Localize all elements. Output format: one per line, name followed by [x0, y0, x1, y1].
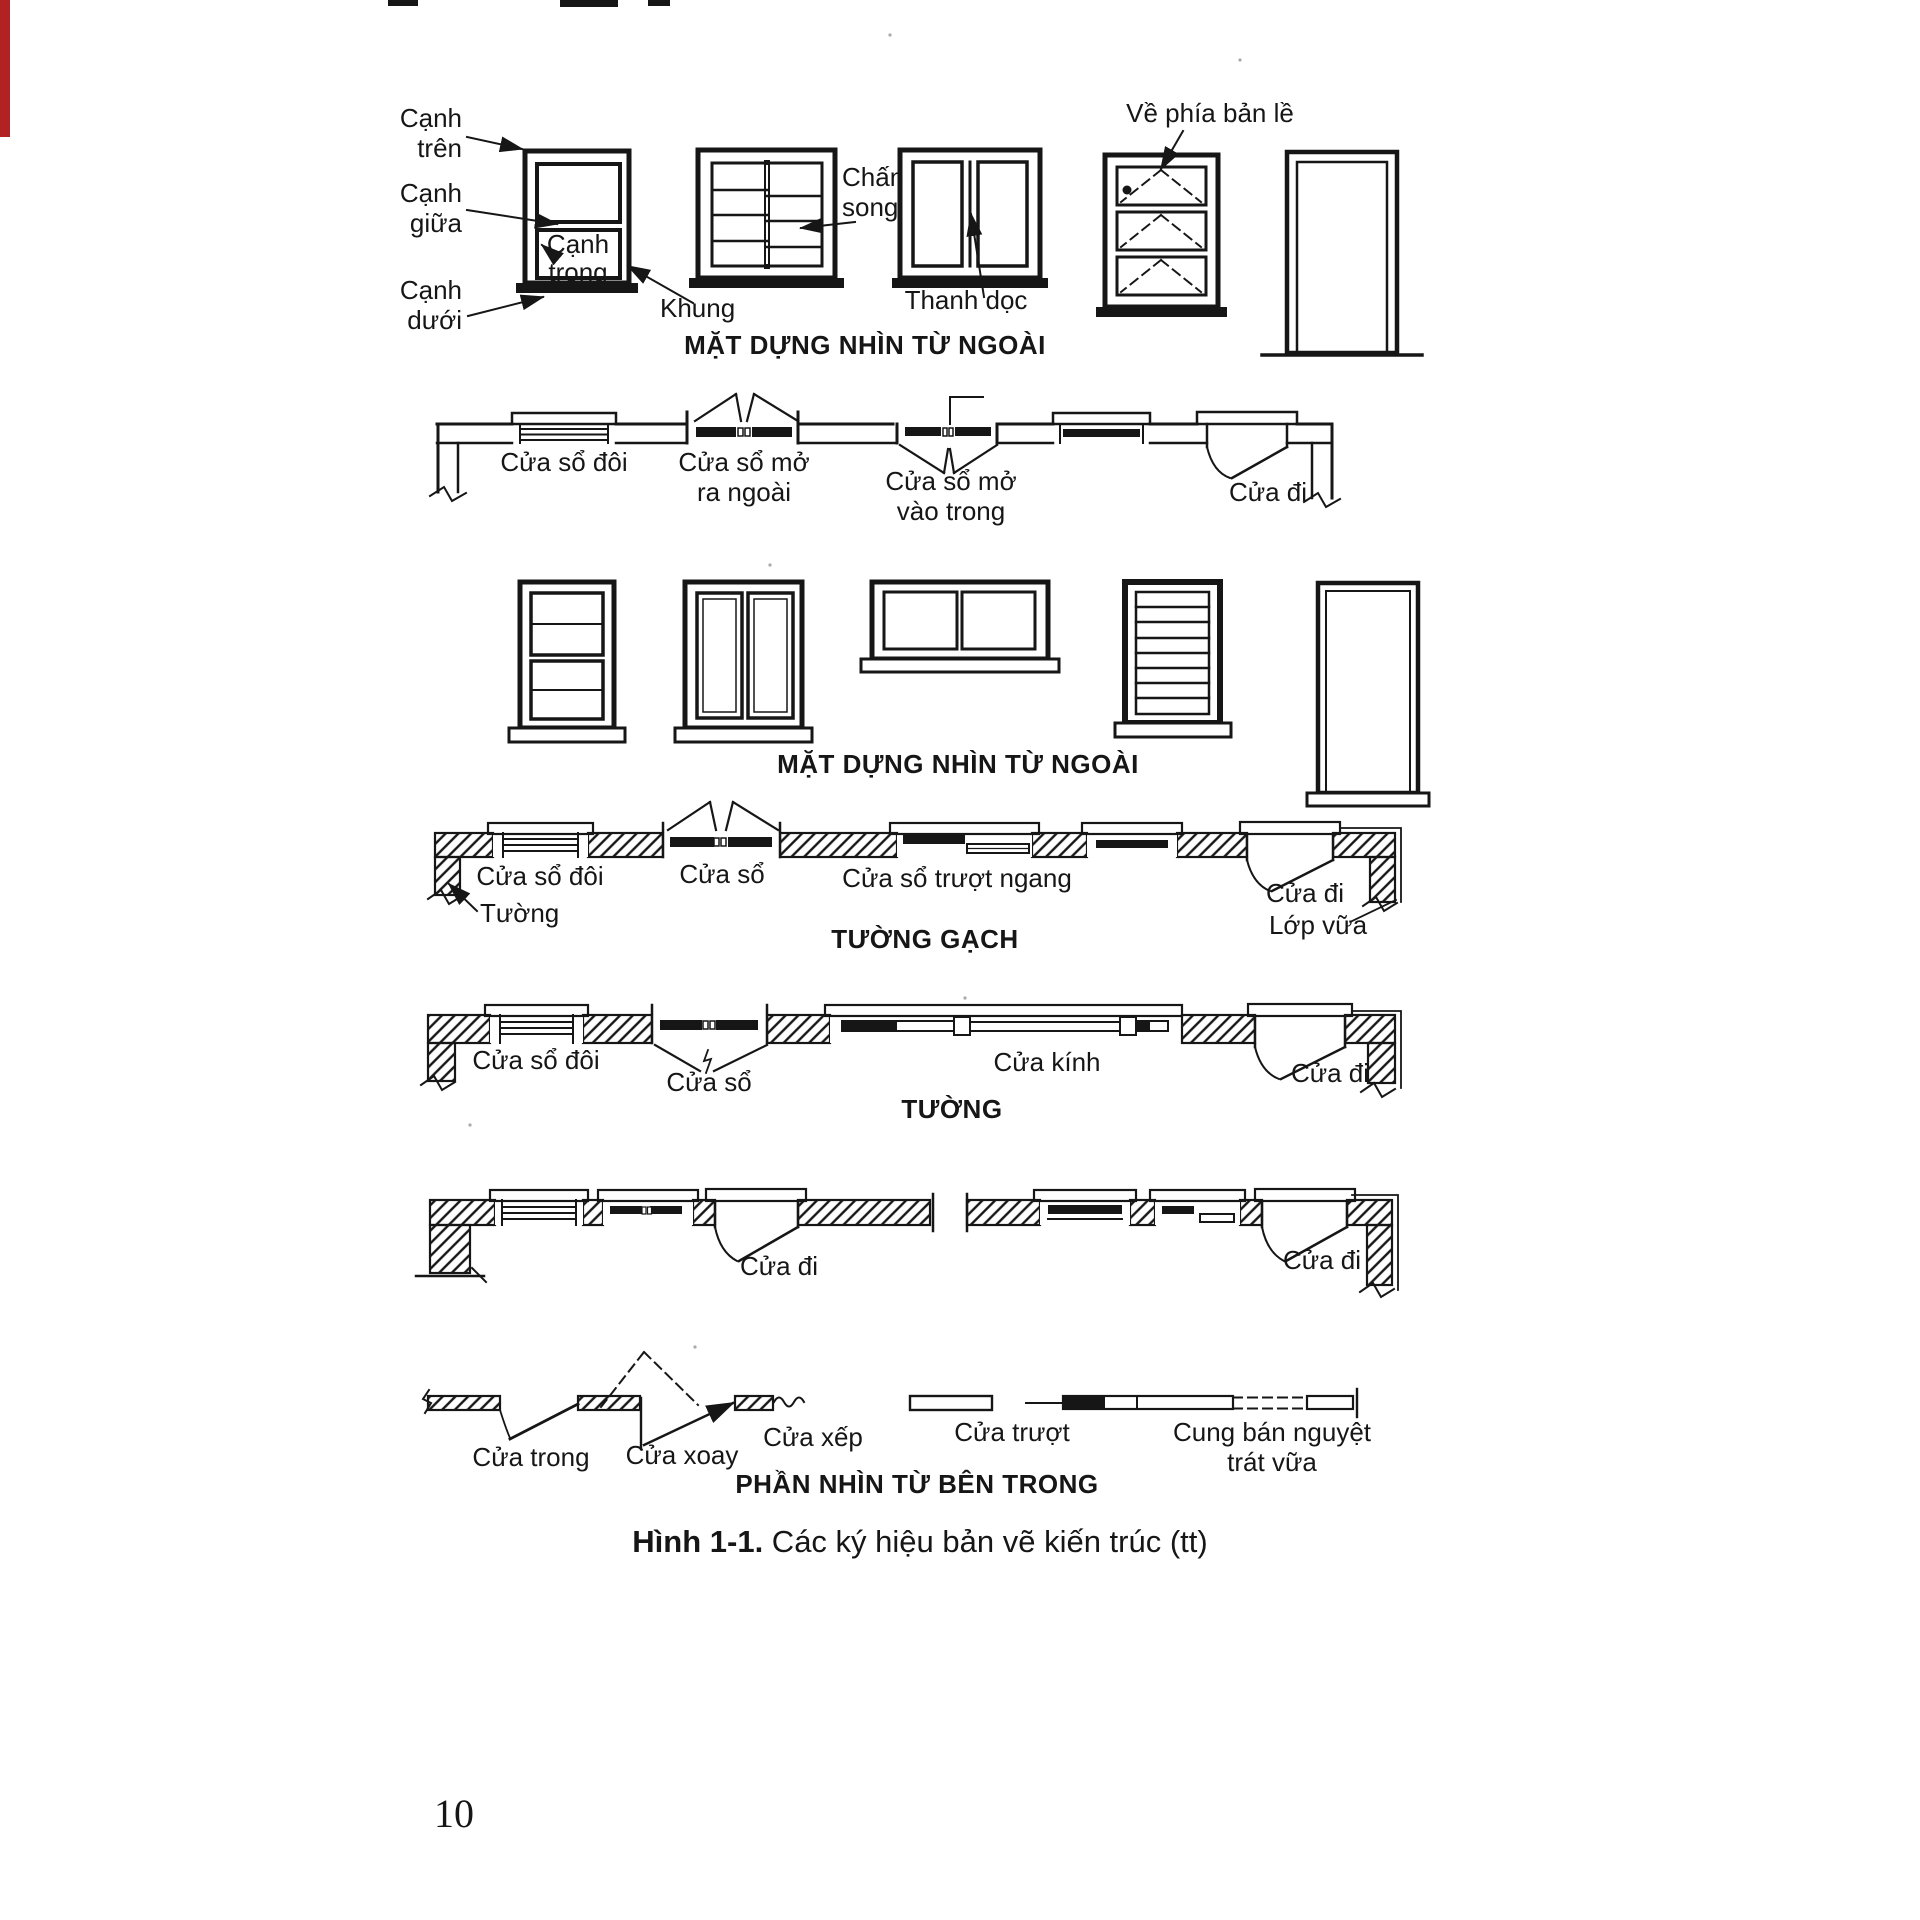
label-cua-xep: Cửa xếp: [763, 1422, 863, 1452]
plan-row-3-wall: Cửa sổ đôi Cửa sổ Cửa kính Cửa đi TƯỜNG: [421, 1004, 1401, 1124]
wall-corner-right: [1367, 1225, 1392, 1285]
label-cua-so-mo-ra-ngoai: Cửa sổ mở: [678, 447, 809, 477]
red-edge-strip: [0, 0, 10, 137]
window-horizontal-slider: [861, 582, 1059, 672]
label-cua-trong: Cửa trong: [472, 1442, 589, 1472]
section-title-elevation-2: MẶT DỰNG NHÌN TỪ NGOÀI: [777, 749, 1139, 779]
svg-text:Khung: Khung: [660, 293, 735, 323]
annotation-khung: Khung: [628, 266, 735, 323]
section-title-elevation-1: MẶT DỰNG NHÌN TỪ NGOÀI: [684, 330, 1046, 360]
label-cua-kinh: Cửa kính: [993, 1047, 1100, 1077]
figure-caption: Hình 1-1. Các ký hiệu bản vẽ kiến trúc (…: [632, 1524, 1207, 1559]
label-cua-xoay: Cửa xoay: [626, 1440, 739, 1470]
window-sill: [1096, 307, 1227, 317]
svg-text:Chấn: Chấn: [842, 162, 904, 192]
hinge-direction-dashes: [1121, 170, 1201, 292]
window-sill: [861, 659, 1059, 672]
label-cung-ban-nguyet: Cung bán nguyệt: [1173, 1417, 1372, 1447]
label-canh-trong: Cạnh: [547, 229, 609, 259]
outward-swing-flaps: [668, 802, 778, 830]
symbol-window-plan: [598, 1190, 698, 1225]
annotation-canh-giua: Cạnh giữa: [400, 178, 557, 238]
svg-text:trên: trên: [417, 133, 462, 163]
door-swing-arc: [1255, 1047, 1279, 1079]
door-elevation: [1262, 152, 1422, 355]
plan-row-1: Cửa sổ đôi Cửa sổ mở ra ngoài Cửa sổ mở …: [430, 394, 1340, 526]
plan-row-2-brick: Cửa sổ đôi Cửa sổ Tường Cửa sổ trượt nga…: [428, 802, 1401, 954]
label-cua-so: Cửa sổ: [666, 1067, 751, 1097]
symbol-window-opening-outward-plan: [687, 394, 798, 443]
top-edge-mark: [560, 0, 618, 7]
door-leaf: [1232, 447, 1287, 478]
figure-drawing: Cạnh trong Cạnh trên Cạnh giữa Cạnh dưới…: [0, 0, 1920, 1920]
label-cua-so-truot-ngang: Cửa sổ trượt ngang: [842, 863, 1072, 893]
window-double-hung-2: [509, 582, 625, 742]
label-cua-so-doi: Cửa sổ đôi: [500, 447, 627, 477]
svg-text:Tường: Tường: [480, 898, 559, 928]
label-cua-di: Cửa đi: [740, 1251, 818, 1281]
symbol-window-plan: [1150, 1190, 1245, 1225]
wall-break: [1304, 493, 1340, 507]
label-cua-di: Cửa đi: [1283, 1245, 1361, 1275]
label-cua-truot: Cửa trượt: [954, 1417, 1070, 1447]
section-heading-tuong: TƯỜNG: [901, 1094, 1002, 1124]
label-cua-so-mo-vao-trong: Cửa sổ mở: [885, 466, 1016, 496]
svg-text:Cạnh: Cạnh: [400, 178, 462, 208]
window-sill: [1115, 723, 1231, 737]
label-cua-so-doi: Cửa sổ đôi: [472, 1045, 599, 1075]
wall-break: [430, 487, 466, 501]
window-sill: [675, 728, 812, 742]
annotation-ve-phia-ban-le: Về phía bản lề: [1126, 98, 1294, 169]
door-elevation-2: [1307, 583, 1429, 806]
symbol-window-opening-inward-plan: [897, 397, 997, 473]
door-swing-arc: [500, 1410, 510, 1438]
label-cua-so-doi: Cửa sổ đôi: [476, 861, 603, 891]
svg-text:Thanh dọc: Thanh dọc: [905, 285, 1028, 315]
svg-text:giữa: giữa: [410, 208, 463, 238]
label-cua-so-mo-ra-ngoai: ra ngoài: [697, 477, 791, 507]
symbol-double-window-plan: [488, 823, 593, 857]
label-cua-di: Cửa đi: [1229, 477, 1307, 507]
symbol-window-plan: [490, 1190, 588, 1225]
symbol-cua-xep: [735, 1396, 804, 1410]
symbol-plain-window-plan: [1053, 413, 1150, 443]
elevation-row-2: MẶT DỰNG NHÌN TỪ NGOÀI: [509, 582, 1429, 806]
scanned-book-page: Cạnh trong Cạnh trên Cạnh giữa Cạnh dưới…: [0, 0, 1920, 1920]
label-cua-di: Cửa đi: [1266, 878, 1344, 908]
svg-text:Lớp vữa: Lớp vữa: [1269, 910, 1368, 940]
page-number: 10: [434, 1791, 474, 1836]
label-cung-ban-nguyet: trát vữa: [1227, 1447, 1317, 1477]
label-canh-trong: trong: [548, 257, 607, 287]
window-sill: [689, 278, 844, 288]
symbol-cua-trong: [428, 1396, 640, 1439]
folding-squiggle: [774, 1398, 804, 1407]
window-sill: [509, 728, 625, 742]
symbol-cua-truot: [910, 1396, 992, 1410]
top-edge-mark: [648, 0, 670, 6]
plan-row-4: Cửa đi: [416, 1189, 1398, 1297]
section-heading-phan-nhin-tu-ben-trong: PHẦN NHÌN TỪ BÊN TRONG: [735, 1469, 1098, 1499]
door-threshold: [1307, 793, 1429, 806]
figure-caption-number: Hình 1-1.: [632, 1524, 763, 1559]
symbol-sliding-window-plan: [890, 823, 1039, 857]
symbol-door-plan: [1197, 412, 1297, 478]
wall-corner-left: [435, 857, 460, 895]
section-heading-tuong-gach: TƯỜNG GẠCH: [831, 924, 1018, 954]
wall-corner-right: [1370, 857, 1395, 902]
symbol-cung-ban-nguyet: [1026, 1389, 1357, 1417]
door-swing-arc: [1262, 1227, 1284, 1261]
louver-slats: [1136, 607, 1209, 698]
svg-text:song: song: [842, 192, 898, 222]
symbol-window-plan: [1034, 1190, 1136, 1225]
door-leaf: [510, 1404, 578, 1439]
symbol-plain-window-plan: [1082, 823, 1182, 857]
outward-swing-flaps: [695, 394, 798, 421]
window-two-pane-elevation: [892, 150, 1048, 288]
window-louvered: [1115, 582, 1231, 737]
figure-caption-text: Các ký hiệu bản vẽ kiến trúc (tt): [763, 1524, 1208, 1559]
top-edge-mark: [388, 0, 418, 6]
door-leaf: [644, 1403, 733, 1445]
window-double-hung-elevation: Cạnh trong: [516, 151, 638, 293]
symbol-window-opening-outward-plan: [663, 802, 780, 857]
symbol-double-window-plan: [485, 1005, 588, 1043]
svg-text:Cạnh: Cạnh: [400, 103, 462, 133]
door-swing-arc: [1207, 447, 1230, 478]
svg-text:Cạnh: Cạnh: [400, 275, 462, 305]
label-cua-so: Cửa sổ: [679, 859, 764, 889]
symbol-glass-door-plan: [825, 1005, 1182, 1043]
window-awning-elevation: [1096, 155, 1227, 317]
label-cua-so-mo-vao-trong: vào trong: [897, 496, 1005, 526]
window-casement-2: [675, 582, 812, 742]
svg-text:dưới: dưới: [407, 305, 462, 335]
door-swing-arc: [715, 1227, 737, 1261]
elevation-row-1: Cạnh trong Cạnh trên Cạnh giữa Cạnh dưới…: [400, 98, 1422, 360]
symbol-double-window-plan: [512, 413, 616, 443]
label-cua-di: Cửa đi: [1291, 1058, 1369, 1088]
symbol-window-opening-inward-plan: [652, 1005, 767, 1073]
svg-text:Về phía bản lề: Về phía bản lề: [1126, 98, 1294, 128]
annotation-canh-tren: Cạnh trên: [400, 103, 522, 163]
window-grid-elevation: [689, 150, 844, 288]
interior-symbols-row: Cửa trong Cửa xoay Cửa xếp Cửa trượt Cu: [423, 1352, 1372, 1499]
hinge-dot: [1123, 186, 1132, 195]
wall-corner-left: [428, 1043, 455, 1081]
wall-corner-left: [430, 1225, 470, 1273]
wall-corner-right: [1368, 1043, 1395, 1083]
